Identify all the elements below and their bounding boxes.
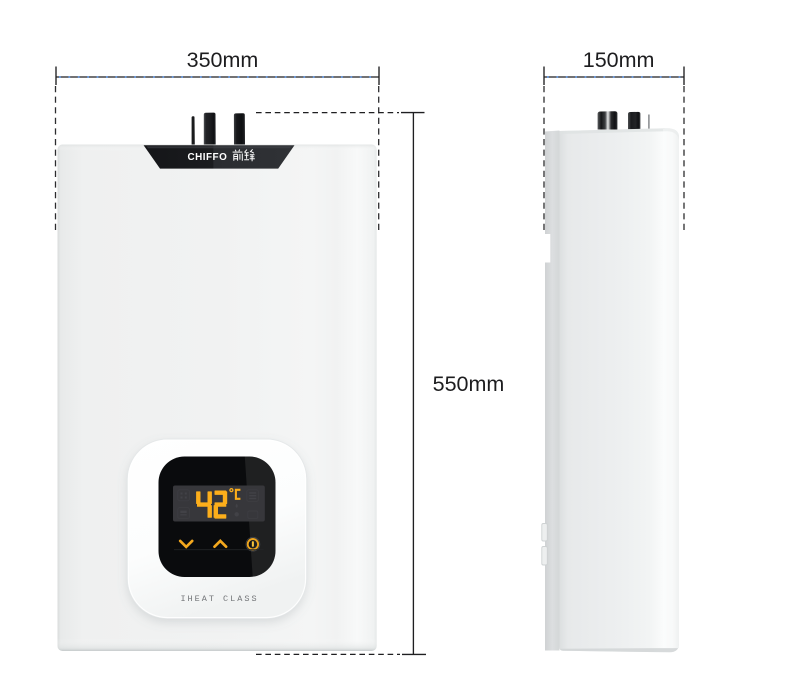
svg-text:CHIFFO: CHIFFO xyxy=(188,152,228,163)
svg-text:550mm: 550mm xyxy=(433,372,505,396)
svg-text:IHEAT CLASS: IHEAT CLASS xyxy=(180,594,258,604)
svg-text:150mm: 150mm xyxy=(583,48,655,72)
svg-text:350mm: 350mm xyxy=(187,48,259,72)
